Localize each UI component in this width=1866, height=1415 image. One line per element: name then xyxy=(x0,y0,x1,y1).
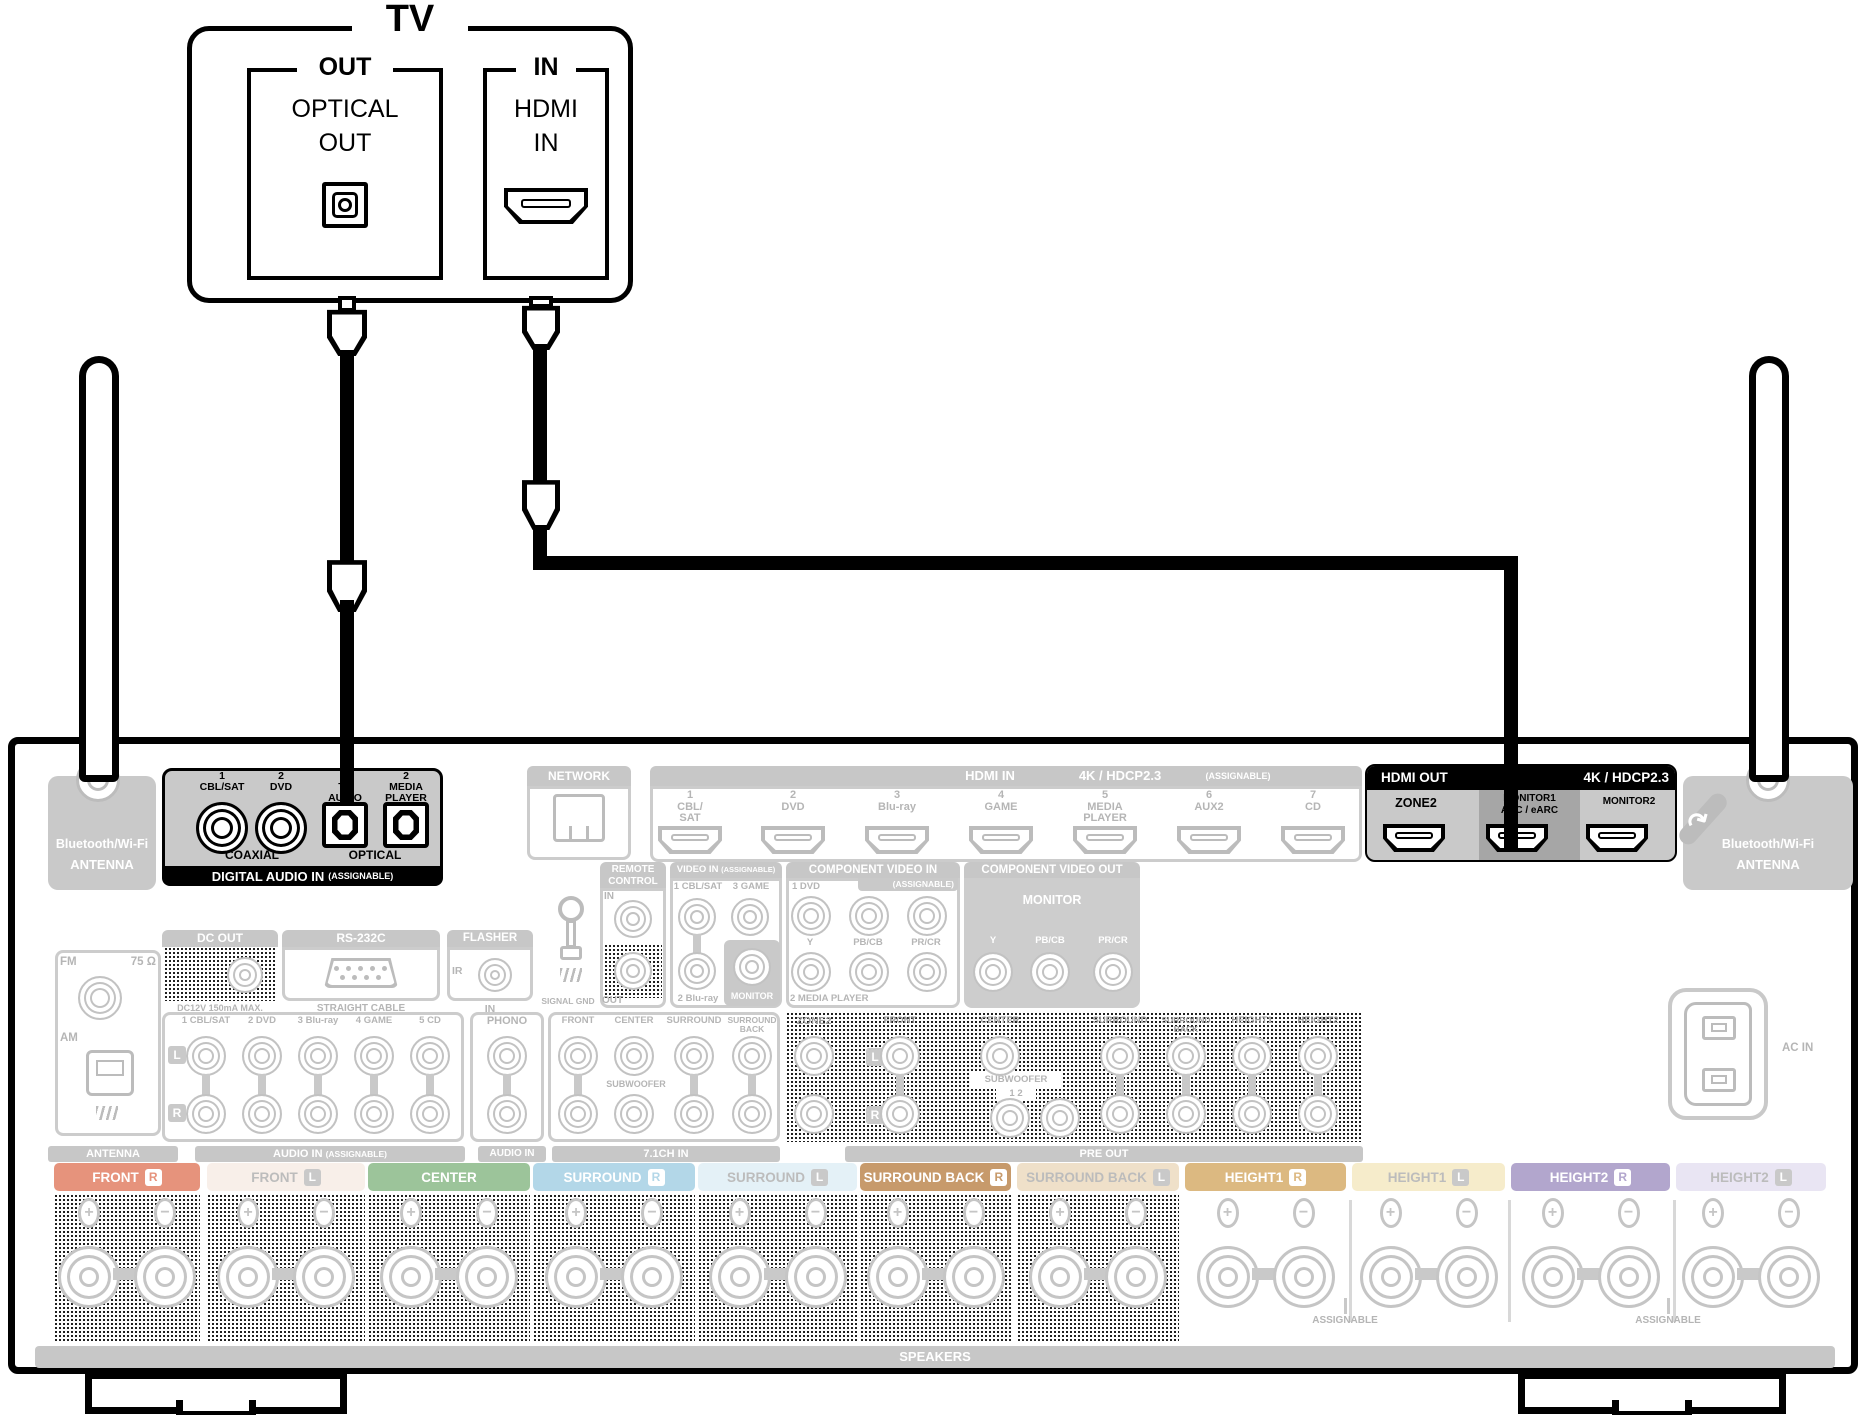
hdmi-cable-vertical-1 xyxy=(533,344,547,570)
preout-sub2-jack xyxy=(1040,1098,1080,1138)
audio-in-bar-note: (ASSIGNABLE) xyxy=(326,1149,387,1159)
component-in-pr-jack xyxy=(907,896,947,936)
binding-post-screw: − xyxy=(1778,1198,1800,1228)
phono-connector-bar xyxy=(503,1074,511,1096)
binding-post-knob xyxy=(217,1246,279,1308)
db9-pin xyxy=(370,966,375,971)
signal-gnd-plug-icon xyxy=(558,896,584,922)
assignable-label-height2: ASSIGNABLE xyxy=(1608,1316,1728,1327)
video-in-game-jack xyxy=(731,898,769,936)
video-in-cblsat-jack xyxy=(678,898,716,936)
component-out-pb-jack xyxy=(1030,952,1070,992)
audio-in-r-jack xyxy=(242,1094,282,1134)
audio-in-l-jack xyxy=(410,1036,450,1076)
preout-jack-row2 xyxy=(1298,1094,1338,1134)
tv-connection-diagram: TV OUT OPTICAL OUT IN HDMI IN Bluetooth/… xyxy=(0,0,1866,1415)
preout-col-label: HEIGHT1 xyxy=(1216,1016,1288,1026)
remote-control-title1: REMOTE xyxy=(600,864,666,876)
binding-post-screw: + xyxy=(1542,1198,1564,1228)
ground-symbol-signal xyxy=(560,968,582,982)
label-line: HEIGHT2 xyxy=(1282,1016,1354,1026)
hdmi-in-port-label: 5MEDIAPLAYER xyxy=(1063,790,1147,825)
binding-post-screw: − xyxy=(1618,1198,1640,1228)
signal-gnd-plug-base xyxy=(560,946,582,960)
ch71-jack-row1 xyxy=(614,1036,654,1076)
phono-audio-in-bar: AUDIO IN xyxy=(478,1146,546,1162)
antenna-bar: ANTENNA xyxy=(48,1146,178,1162)
component-in-pb-label: PB/CB xyxy=(842,938,894,948)
ch71-jack-row2 xyxy=(732,1094,772,1134)
video-in-title: VIDEO IN xyxy=(677,864,719,875)
db9-pin xyxy=(340,975,345,980)
speaker-label-text: SURROUND BACK xyxy=(1026,1170,1147,1185)
speaker-label-surround-back-l: SURROUND BACKL xyxy=(1017,1163,1179,1191)
label-line: AUX2 xyxy=(1167,802,1251,814)
label-line: FRONT xyxy=(864,1016,936,1026)
remote-control-header: REMOTE CONTROL xyxy=(600,862,666,888)
binding-post-screw: − xyxy=(1125,1198,1147,1228)
fm-coax-jack xyxy=(78,976,122,1020)
ch71-jack-row1 xyxy=(674,1036,714,1076)
binding-post-screw: + xyxy=(400,1198,422,1228)
hdmi-in-port-6 xyxy=(1177,826,1241,854)
preout-jack-row1 xyxy=(1298,1036,1338,1076)
signal-gnd-label: SIGNAL GND xyxy=(528,997,608,1006)
binding-post-screw: − xyxy=(1456,1198,1478,1228)
hdmi-in-port-7 xyxy=(1281,826,1345,854)
port-number: 2 xyxy=(751,790,835,802)
hdmi-out-title: HDMI OUT xyxy=(1381,771,1491,785)
component-in-jack2-label: 2 MEDIA PLAYER xyxy=(790,994,900,1004)
component-out-y-jack xyxy=(973,952,1013,992)
binding-post-screw: − xyxy=(1293,1198,1315,1228)
hdmi-in-port-5 xyxy=(1073,826,1137,854)
binding-post-screw: + xyxy=(1049,1198,1071,1228)
assignable-tick-2 xyxy=(1667,1298,1670,1314)
hdmi-out-port-zone2 xyxy=(1383,824,1445,852)
video-monitor-jack xyxy=(733,948,771,986)
rs232c-header: RS-232C xyxy=(282,930,440,947)
label-line: PLAYER xyxy=(1063,813,1147,825)
binding-post-screw: − xyxy=(154,1198,176,1228)
flasher-ir-jack xyxy=(478,958,512,992)
binding-post-knob xyxy=(1522,1246,1584,1308)
signal-gnd-plug-stem xyxy=(566,920,576,948)
binding-post-knob xyxy=(621,1246,683,1308)
video-in-jack3-label: 3 GAME xyxy=(726,882,776,892)
preout-zone2-r-jack xyxy=(794,1094,834,1134)
preout-zone2-label: ZONE2 xyxy=(786,1016,842,1027)
binding-post-knob xyxy=(1758,1246,1820,1308)
tv-hdmi-label-line1: HDMI xyxy=(466,96,626,122)
ch71-jack-row1 xyxy=(558,1036,598,1076)
fm-label: FM xyxy=(60,956,90,968)
binding-post-knob xyxy=(1105,1246,1167,1308)
hdmi-in-title: HDMI IN xyxy=(935,769,1045,783)
binding-post-knob xyxy=(1029,1246,1091,1308)
binding-post-screw: + xyxy=(565,1198,587,1228)
digital-audio-in-title-bar: DIGITAL AUDIO IN (ASSIGNABLE) xyxy=(162,866,443,886)
label-line: BACK xyxy=(1150,1025,1222,1034)
speaker-label-height2-r: HEIGHT2R xyxy=(1511,1163,1670,1191)
audio-in-l-jack xyxy=(242,1036,282,1076)
remote-out-jack xyxy=(614,952,652,990)
flasher-ir-label: IR xyxy=(452,966,476,977)
speaker-channel-letter: R xyxy=(145,1169,162,1186)
dc-out-jack xyxy=(227,957,263,993)
digital-jack-label: 2DVD xyxy=(245,771,317,793)
binding-post-screw: + xyxy=(237,1198,259,1228)
am-terminal-inner xyxy=(96,1060,124,1076)
speaker-label-text: SURROUND BACK xyxy=(864,1170,985,1185)
digital-coaxial-jack xyxy=(196,802,248,854)
audio-in-connector-bar xyxy=(370,1074,378,1096)
phono-label: PHONO xyxy=(470,1016,544,1028)
speaker-label-front-r: FRONTR xyxy=(54,1163,200,1191)
preout-connector-bar xyxy=(1248,1074,1256,1096)
preout-col-label: SURROUND xyxy=(1084,1016,1156,1026)
digital-coaxial-jack xyxy=(255,802,307,854)
ch71-col-label: SURROUND xyxy=(664,1016,724,1026)
binding-post-knob xyxy=(1360,1246,1422,1308)
binding-post-screw: + xyxy=(1702,1198,1724,1228)
binding-post-knob xyxy=(456,1246,518,1308)
speaker-label-text: HEIGHT1 xyxy=(1225,1170,1284,1185)
hdmi-cable-horizontal xyxy=(533,556,1518,570)
video-monitor-label: MONITOR xyxy=(724,992,780,1001)
preout-zone2-l-jack xyxy=(794,1036,834,1076)
label-line: CD xyxy=(1271,802,1355,814)
digital-optical-jack xyxy=(383,802,429,848)
db9-pin xyxy=(358,966,363,971)
preout-sub1-jack xyxy=(990,1098,1030,1138)
binding-post-screw: + xyxy=(729,1198,751,1228)
component-in-y2-jack xyxy=(791,952,831,992)
audio-in-connector-bar xyxy=(202,1074,210,1096)
binding-post-knob xyxy=(785,1246,847,1308)
label-line: CENTER xyxy=(964,1016,1036,1026)
hdmi-in-port-label: 3Blu-ray xyxy=(855,790,939,813)
speaker-channel-letter: L xyxy=(811,1169,828,1186)
component-out-y-label: Y xyxy=(978,936,1008,946)
hdmi-in-port-label: 7CD xyxy=(1271,790,1355,813)
ch71-col-label: CENTER xyxy=(604,1016,664,1026)
digital-audio-in-title: DIGITAL AUDIO IN xyxy=(212,869,324,884)
binding-post-knob xyxy=(293,1246,355,1308)
ch71-col-label: SURROUNDBACK xyxy=(722,1016,782,1034)
db9-pin xyxy=(376,975,381,980)
hdmi-in-port-label: 1CBL/SAT xyxy=(648,790,732,825)
video-in-header: VIDEO IN (ASSIGNABLE) xyxy=(670,862,782,878)
component-in-y-label: Y xyxy=(796,938,824,948)
assignable-label-height1: ASSIGNABLE xyxy=(1285,1316,1405,1327)
audio-in-r-jack xyxy=(354,1094,394,1134)
audio-in-input-label: 3 Blu-ray xyxy=(288,1016,348,1026)
binding-post-knob xyxy=(134,1246,196,1308)
label-line: FRONT xyxy=(548,1016,608,1026)
label-line: Blu-ray xyxy=(855,802,939,814)
remote-in-jack xyxy=(614,900,652,938)
hdmi-in-port-4 xyxy=(969,826,1033,854)
ch71-jack-row2 xyxy=(558,1094,598,1134)
remote-out-label: OUT xyxy=(602,996,636,1007)
binding-post-knob xyxy=(709,1246,771,1308)
audio-in-l-jack xyxy=(354,1036,394,1076)
speaker-label-height2-l: HEIGHT2L xyxy=(1676,1163,1826,1191)
hdmi-in-note: (ASSIGNABLE) xyxy=(1188,772,1288,781)
ac-in-label: AC IN xyxy=(1782,1042,1846,1054)
port-number: 4 xyxy=(959,790,1043,802)
db9-pin xyxy=(364,975,369,980)
speaker-label-text: FRONT xyxy=(92,1170,139,1185)
binding-post-screw: + xyxy=(1380,1198,1402,1228)
audio-in-connector-bar xyxy=(314,1074,322,1096)
speaker-label-text: FRONT xyxy=(251,1170,298,1185)
binding-post-knob xyxy=(943,1246,1005,1308)
speaker-channel-letter: L xyxy=(1153,1169,1170,1186)
speaker-label-center: CENTER xyxy=(368,1163,530,1191)
video-in-bluray-jack xyxy=(678,952,716,990)
ch71-subwoofer-label: SUBWOOFER xyxy=(600,1080,672,1089)
preout-jack-row2 xyxy=(1100,1094,1140,1134)
hdmi-cable-vertical-2 xyxy=(1504,556,1518,848)
audio-in-input-label: 5 CD xyxy=(400,1016,460,1026)
speaker-label-text: SURROUND xyxy=(563,1170,641,1185)
digital-audio-in-title-note: (ASSIGNABLE) xyxy=(328,871,393,881)
port-number: 6 xyxy=(1167,790,1251,802)
antenna-pole-left xyxy=(79,356,119,782)
preout-connector-bar xyxy=(896,1074,904,1096)
phono-l-jack xyxy=(487,1036,527,1076)
component-video-out-header: COMPONENT VIDEO OUT xyxy=(964,862,1140,878)
hdmi-in-port-1 xyxy=(658,826,722,854)
preout-jack-row1 xyxy=(880,1036,920,1076)
audio-in-r-jack xyxy=(410,1094,450,1134)
ch71-jack-row2 xyxy=(614,1094,654,1134)
hdmi-in-spec: 4K / HDCP2.3 xyxy=(1060,769,1180,783)
binding-post-knob xyxy=(1436,1246,1498,1308)
speaker-label-text: HEIGHT2 xyxy=(1710,1170,1769,1185)
preout-subwoofer-label: SUBWOOFER xyxy=(970,1072,1062,1088)
hdmi-in-port-3 xyxy=(865,826,929,854)
binding-post-screw: − xyxy=(313,1198,335,1228)
speaker-label-front-l: FRONTL xyxy=(207,1163,365,1191)
binding-post-screw: + xyxy=(887,1198,909,1228)
label-line: DVD xyxy=(751,802,835,814)
preout-col-label: FRONT xyxy=(864,1016,936,1026)
height-divider-2 xyxy=(1508,1200,1511,1322)
receiver-foot-left-notch xyxy=(176,1400,256,1415)
component-in-pb2-jack xyxy=(849,952,889,992)
rs232c-db9-icon xyxy=(324,958,398,988)
db9-pin xyxy=(382,966,387,971)
preout-jack-row1 xyxy=(1232,1036,1272,1076)
network-header: NETWORK xyxy=(527,766,631,786)
preout-jack-row1 xyxy=(1100,1036,1140,1076)
ch71-connector-bar xyxy=(748,1074,756,1096)
binding-post-knob xyxy=(1598,1246,1660,1308)
component-in-pr2-jack xyxy=(907,952,947,992)
hdmi-out-monitor1-label: MONITOR1 xyxy=(1479,794,1580,805)
audio-in-connector-bar xyxy=(426,1074,434,1096)
label-line: BACK xyxy=(722,1025,782,1034)
label-line: CENTER xyxy=(604,1016,664,1026)
speaker-channel-letter: L xyxy=(304,1169,321,1186)
hdmi-in-port-label: 6AUX2 xyxy=(1167,790,1251,813)
label-line: DVD xyxy=(245,782,317,793)
am-label: AM xyxy=(60,1032,90,1044)
ch71-col-label: FRONT xyxy=(548,1016,608,1026)
height-divider-1 xyxy=(1349,1200,1352,1322)
video-in-jack1-label: 1 CBL/SAT xyxy=(672,882,724,892)
speaker-channel-letter: R xyxy=(1289,1169,1306,1186)
label-line: SAT xyxy=(648,813,732,825)
audio-in-bar: AUDIO IN (ASSIGNABLE) xyxy=(195,1146,465,1162)
tv-hdmi-label-line2: IN xyxy=(466,130,626,156)
preout-jack-row2 xyxy=(880,1094,920,1134)
speaker-channel-letter: R xyxy=(1614,1169,1631,1186)
preout-jack-row2 xyxy=(1232,1094,1272,1134)
component-in-y-jack xyxy=(791,896,831,936)
antenna-pole-right xyxy=(1749,356,1789,782)
pre-out-bar: PRE OUT xyxy=(845,1146,1363,1162)
audio-in-connector-bar xyxy=(258,1074,266,1096)
audio-in-l-box: L xyxy=(168,1046,186,1064)
binding-post-knob xyxy=(867,1246,929,1308)
speaker-channel-letter: R xyxy=(648,1169,665,1186)
digital-optical-group-label: OPTICAL xyxy=(315,849,435,862)
speaker-label-surround-l: SURROUNDL xyxy=(698,1163,857,1191)
db9-pin xyxy=(352,975,357,980)
audio-in-r-box: R xyxy=(168,1104,186,1122)
speaker-channel-letter: L xyxy=(1452,1169,1469,1186)
port-number: 7 xyxy=(1271,790,1355,802)
audio-in-l-jack xyxy=(186,1036,226,1076)
preout-jack-row1 xyxy=(1166,1036,1206,1076)
hdmi-in-port-2 xyxy=(761,826,825,854)
preout-connector-bar xyxy=(1116,1074,1124,1096)
flasher-header: FLASHER xyxy=(447,930,533,947)
hdmi-in-port-label: 2DVD xyxy=(751,790,835,813)
component-video-in-header: COMPONENT VIDEO IN xyxy=(786,862,960,878)
port-number: 1 xyxy=(648,790,732,802)
hdmi-out-zone2-label: ZONE2 xyxy=(1373,797,1459,810)
hdmi-out-monitor2-label: MONITOR2 xyxy=(1583,797,1675,808)
db9-pin xyxy=(334,966,339,971)
preout-jack-row2 xyxy=(1166,1094,1206,1134)
antenna-left-label-line2: ANTENNA xyxy=(50,858,154,872)
antenna-right-label-line2: ANTENNA xyxy=(1685,858,1851,872)
speaker-label-text: HEIGHT1 xyxy=(1388,1170,1447,1185)
component-in-pr-label: PR/CR xyxy=(900,938,952,948)
digital-optical-jack xyxy=(322,802,368,848)
component-out-monitor-label: MONITOR xyxy=(964,894,1140,907)
video-in-connector-bar xyxy=(693,934,701,954)
digital-jack-label: 2MEDIAPLAYER xyxy=(370,771,442,804)
preout-col-label: SURROUNDBACK xyxy=(1150,1016,1222,1034)
hdmi-plug-mid xyxy=(522,478,560,530)
binding-post-knob xyxy=(1682,1246,1744,1308)
audio-in-r-jack xyxy=(298,1094,338,1134)
preout-col-label: CENTER xyxy=(964,1016,1036,1026)
binding-post-knob xyxy=(1273,1246,1335,1308)
speaker-channel-letter: R xyxy=(990,1169,1007,1186)
preout-connector-bar xyxy=(1314,1074,1322,1096)
tv-out-bracket-label: OUT xyxy=(297,54,393,80)
remote-control-title2: CONTROL xyxy=(600,876,666,888)
audio-in-bar-title: AUDIO IN xyxy=(273,1148,323,1160)
ch71-connector-bar xyxy=(690,1074,698,1096)
hdmi-out-port-monitor2 xyxy=(1586,824,1648,852)
binding-post-screw: − xyxy=(476,1198,498,1228)
antenna-left-label-line1: Bluetooth/Wi-Fi xyxy=(50,838,154,851)
hdmi-out-monitor1-sublabel: ARC / eARC xyxy=(1479,806,1580,817)
tv-optical-label-line2: OUT xyxy=(265,130,425,156)
preout-jack-row1 xyxy=(980,1036,1020,1076)
speaker-label-surround-r: SURROUNDR xyxy=(533,1163,695,1191)
binding-post-knob xyxy=(380,1246,442,1308)
binding-post-knob xyxy=(1197,1246,1259,1308)
antenna-right-label-line1: Bluetooth/Wi-Fi xyxy=(1685,838,1851,851)
tv-in-bracket-label: IN xyxy=(516,54,576,80)
phono-r-jack xyxy=(487,1094,527,1134)
preout-subwoofer-nums: 1 2 xyxy=(996,1088,1036,1099)
port-number: 3 xyxy=(855,790,939,802)
tv-optical-label-line1: OPTICAL xyxy=(265,96,425,122)
audio-in-input-label: 1 CBL/SAT xyxy=(176,1016,236,1026)
speaker-label-text: CENTER xyxy=(421,1170,477,1185)
video-in-jack2-label: 2 Blu-ray xyxy=(670,994,726,1004)
label-line: SURROUND xyxy=(664,1016,724,1026)
ground-symbol-am xyxy=(96,1106,118,1120)
ac-inlet-pin-bottom-inner xyxy=(1711,1075,1727,1084)
receiver-foot-right-notch xyxy=(1612,1400,1692,1415)
speaker-label-height1-r: HEIGHT1R xyxy=(1185,1163,1346,1191)
preout-col-label: HEIGHT2 xyxy=(1282,1016,1354,1026)
ch71-jack-row1 xyxy=(732,1036,772,1076)
dc-out-header: DC OUT xyxy=(162,930,278,947)
hdmi-in-port-label: 4GAME xyxy=(959,790,1043,813)
db9-pin xyxy=(346,966,351,971)
preout-connector-bar xyxy=(1182,1074,1190,1096)
binding-post-screw: + xyxy=(78,1198,100,1228)
ch71-connector-bar xyxy=(574,1074,582,1096)
speaker-label-height1-l: HEIGHT1L xyxy=(1352,1163,1505,1191)
binding-post-screw: + xyxy=(1217,1198,1239,1228)
port-number: 5 xyxy=(1063,790,1147,802)
component-in-jack1-label: 1 DVD xyxy=(792,882,836,892)
hdmi-out-block: HDMI OUT 4K / HDCP2.3 ZONE2 MONITOR1 ARC… xyxy=(1365,764,1677,862)
speaker-channel-letter: L xyxy=(1775,1169,1792,1186)
video-in-note: (ASSIGNABLE) xyxy=(721,865,775,874)
audio-in-input-label: 4 GAME xyxy=(344,1016,404,1026)
speaker-label-text: SURROUND xyxy=(727,1170,805,1185)
component-in-pb-jack xyxy=(849,896,889,936)
component-out-pb-label: PB/CB xyxy=(1024,936,1076,946)
binding-post-screw: − xyxy=(641,1198,663,1228)
tv-hdmi-connector-icon xyxy=(504,188,588,224)
audio-in-r-jack xyxy=(186,1094,226,1134)
binding-post-screw: − xyxy=(963,1198,985,1228)
tv-optical-connector-circle xyxy=(338,198,352,212)
component-out-pr-jack xyxy=(1093,952,1133,992)
audio-in-input-label: 2 DVD xyxy=(232,1016,292,1026)
speakers-bar: SPEAKERS xyxy=(35,1346,1835,1368)
optical-plug-top xyxy=(327,308,367,356)
ac-inlet-pin-top-inner xyxy=(1711,1023,1727,1032)
audio-in-l-jack xyxy=(298,1036,338,1076)
binding-post-screw: − xyxy=(805,1198,827,1228)
